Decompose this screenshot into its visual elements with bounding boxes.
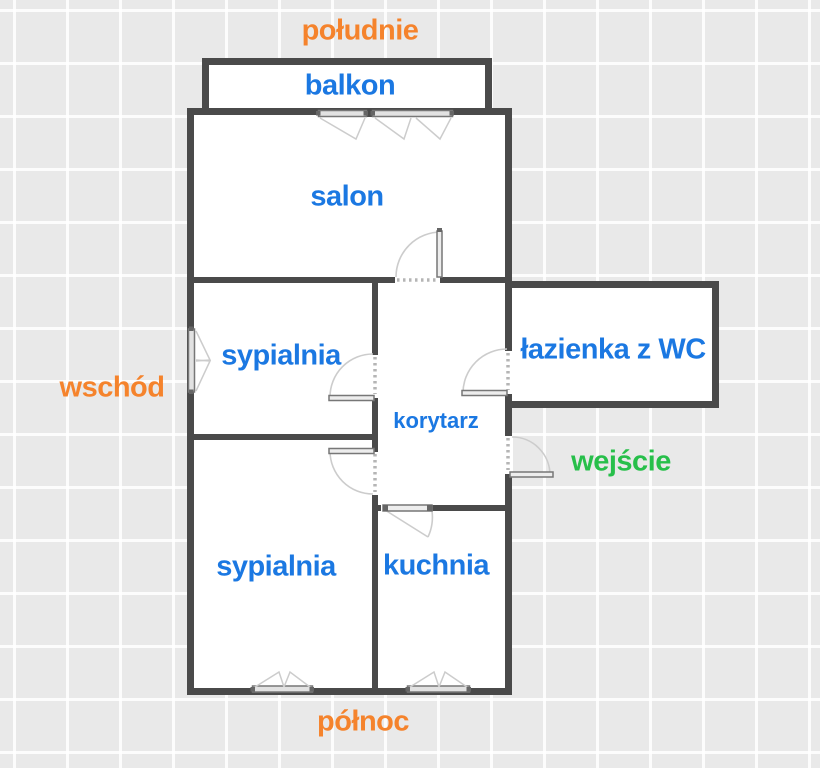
kitchen-door-leaf	[383, 505, 432, 511]
compass-label-north: północ	[317, 706, 409, 739]
bedroom-lower-door-leaf	[329, 449, 374, 454]
entrance-label: wejście	[571, 446, 671, 479]
room-label-bedroom-lower: sypialnia	[216, 551, 336, 584]
bathroom-door-leaf	[462, 391, 507, 396]
livingroom-window-left-frame	[319, 111, 367, 117]
livingroom-door-leaf	[437, 231, 442, 277]
compass-label-east: wschód	[60, 372, 165, 405]
entrance-door-leaf	[510, 472, 553, 477]
livingroom-window-right-frame	[373, 111, 453, 117]
room-label-bedroom-upper: sypialnia	[221, 340, 341, 373]
bedroom-lower-window-frame	[253, 686, 313, 692]
room-label-corridor: korytarz	[393, 408, 479, 434]
room-label-bathroom: łazienka z WC	[520, 334, 705, 367]
entrance-door-arc	[512, 437, 550, 475]
compass-label-south: południe	[302, 15, 419, 48]
room-label-living-room: salon	[310, 181, 383, 214]
bedroom-upper-door-leaf	[329, 396, 374, 401]
room-label-kitchen: kuchnia	[383, 550, 489, 583]
room-label-balcony: balkon	[305, 70, 395, 103]
bedroom-upper-window-frame	[189, 329, 195, 392]
floor-plan-canvas: południe balkon salon sypialnia łazienka…	[0, 0, 820, 768]
walls	[191, 62, 716, 692]
